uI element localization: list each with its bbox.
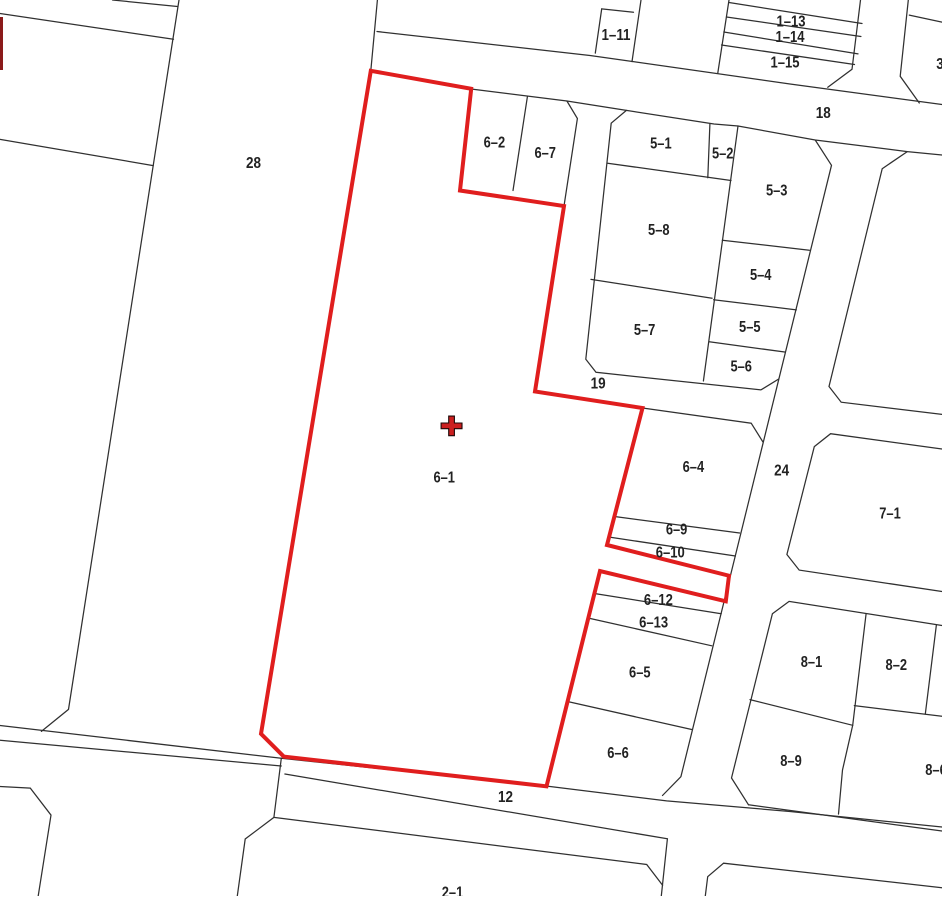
svg-text:6–9: 6–9 [666,521,688,538]
svg-text:6–12: 6–12 [644,592,673,609]
svg-text:12: 12 [498,789,513,806]
svg-text:18: 18 [816,105,831,122]
svg-text:5–3: 5–3 [766,183,788,200]
svg-text:5–4: 5–4 [750,267,772,284]
svg-text:7–1: 7–1 [879,506,901,523]
svg-text:19: 19 [591,376,606,393]
svg-text:6–4: 6–4 [683,459,705,476]
svg-text:6–10: 6–10 [656,545,685,562]
svg-text:5–7: 5–7 [634,322,656,339]
svg-text:5–5: 5–5 [739,319,761,336]
svg-text:6–5: 6–5 [629,665,651,682]
svg-text:5–2: 5–2 [712,146,734,163]
svg-text:6–1: 6–1 [433,470,455,487]
svg-text:1–13: 1–13 [777,14,806,31]
svg-text:5–6: 5–6 [730,358,752,375]
svg-text:8–1: 8–1 [801,654,823,671]
svg-text:2–1: 2–1 [442,885,464,896]
svg-text:8–9: 8–9 [780,753,802,770]
svg-text:8–6: 8–6 [925,762,942,779]
svg-text:5–1: 5–1 [650,136,672,153]
svg-text:28: 28 [246,155,261,172]
svg-text:24: 24 [774,463,789,480]
svg-text:8–2: 8–2 [886,657,908,674]
svg-text:6–6: 6–6 [607,745,629,762]
svg-text:1–14: 1–14 [776,29,805,46]
svg-text:3: 3 [936,56,942,73]
svg-text:6–13: 6–13 [639,615,668,632]
svg-text:1–11: 1–11 [602,27,631,44]
svg-text:6–7: 6–7 [534,145,556,162]
svg-text:6–2: 6–2 [484,135,506,152]
svg-text:1–15: 1–15 [771,54,800,71]
svg-text:5–8: 5–8 [648,222,670,239]
